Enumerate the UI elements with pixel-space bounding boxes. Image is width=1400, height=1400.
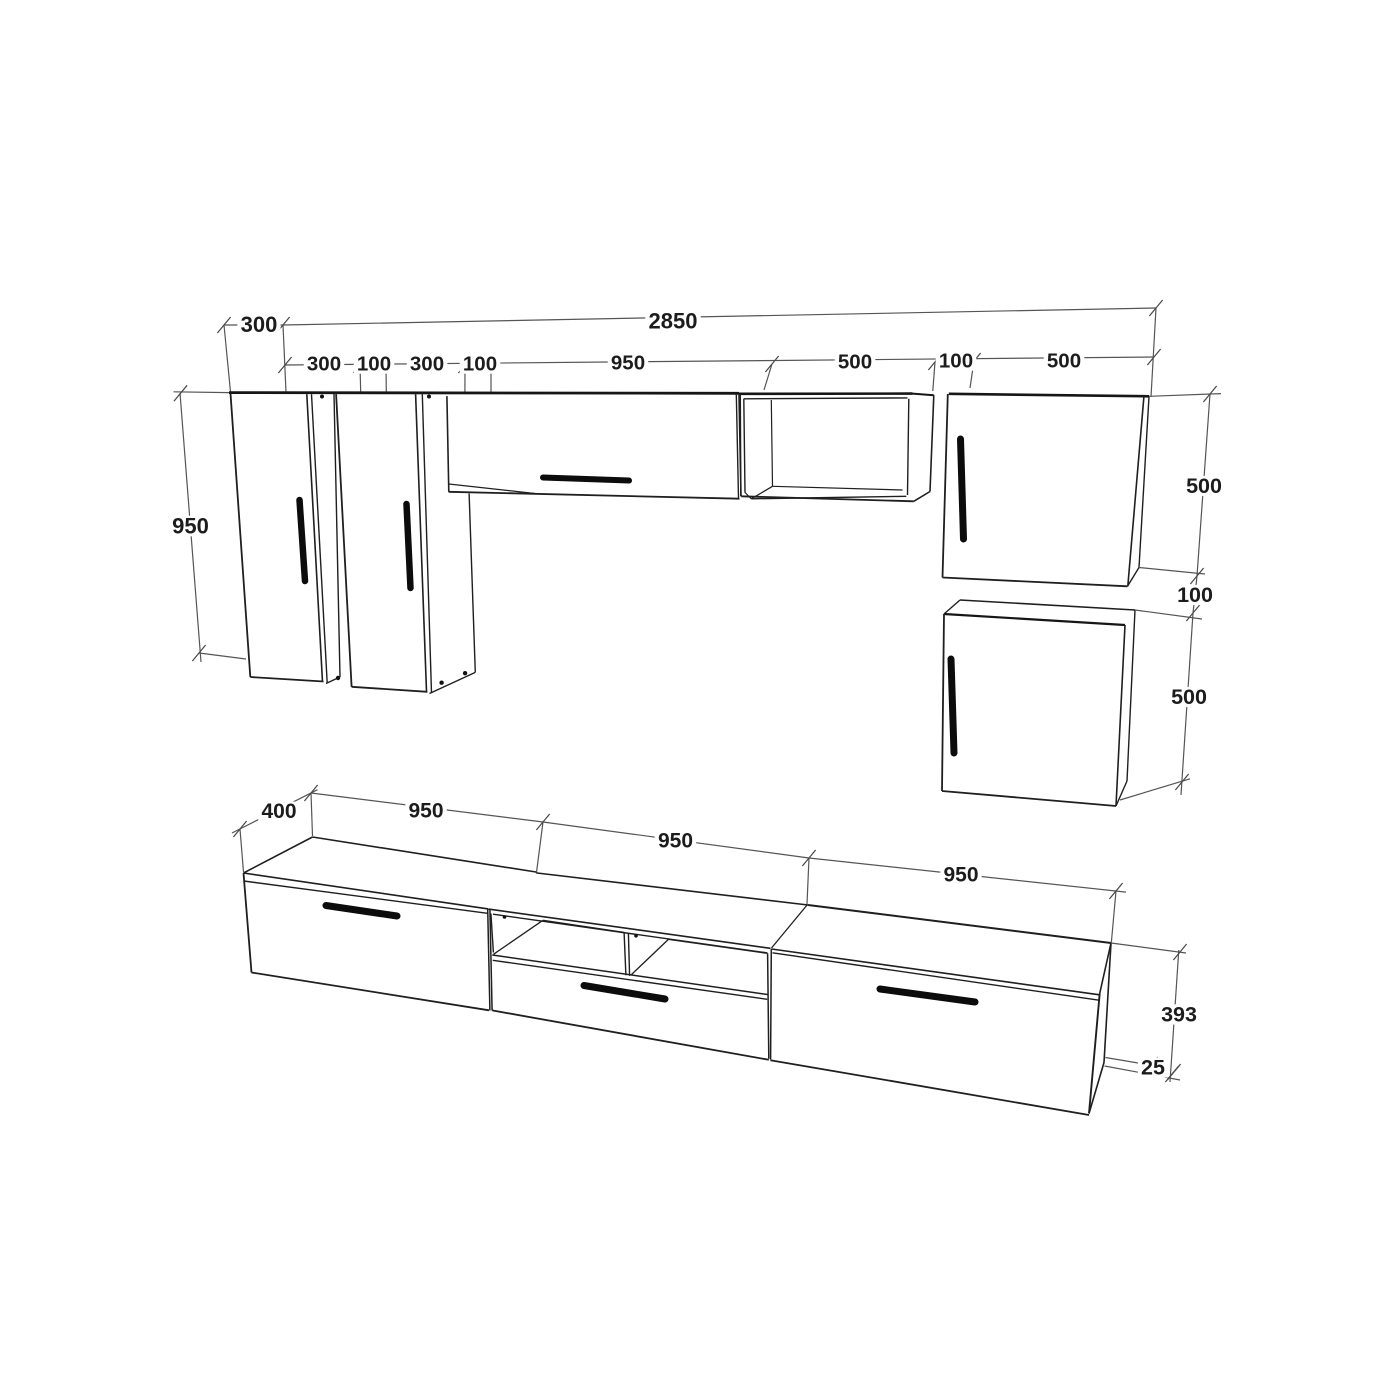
svg-text:300: 300: [307, 353, 341, 376]
svg-text:500: 500: [838, 351, 872, 374]
svg-text:500: 500: [1047, 350, 1081, 373]
svg-text:2850: 2850: [649, 309, 698, 334]
svg-text:950: 950: [658, 830, 693, 853]
svg-text:100: 100: [463, 353, 497, 376]
svg-text:950: 950: [172, 514, 209, 539]
svg-text:950: 950: [408, 800, 443, 823]
svg-text:500: 500: [1171, 685, 1207, 709]
svg-text:100: 100: [357, 353, 391, 376]
svg-text:500: 500: [1186, 474, 1222, 498]
svg-text:950: 950: [611, 352, 645, 375]
svg-text:400: 400: [261, 800, 296, 823]
svg-text:300: 300: [241, 312, 278, 337]
svg-text:100: 100: [1177, 583, 1213, 607]
svg-text:100: 100: [939, 350, 973, 373]
svg-text:393: 393: [1161, 1003, 1197, 1027]
svg-text:25: 25: [1141, 1056, 1165, 1080]
svg-text:300: 300: [410, 353, 444, 376]
svg-text:950: 950: [943, 864, 978, 887]
